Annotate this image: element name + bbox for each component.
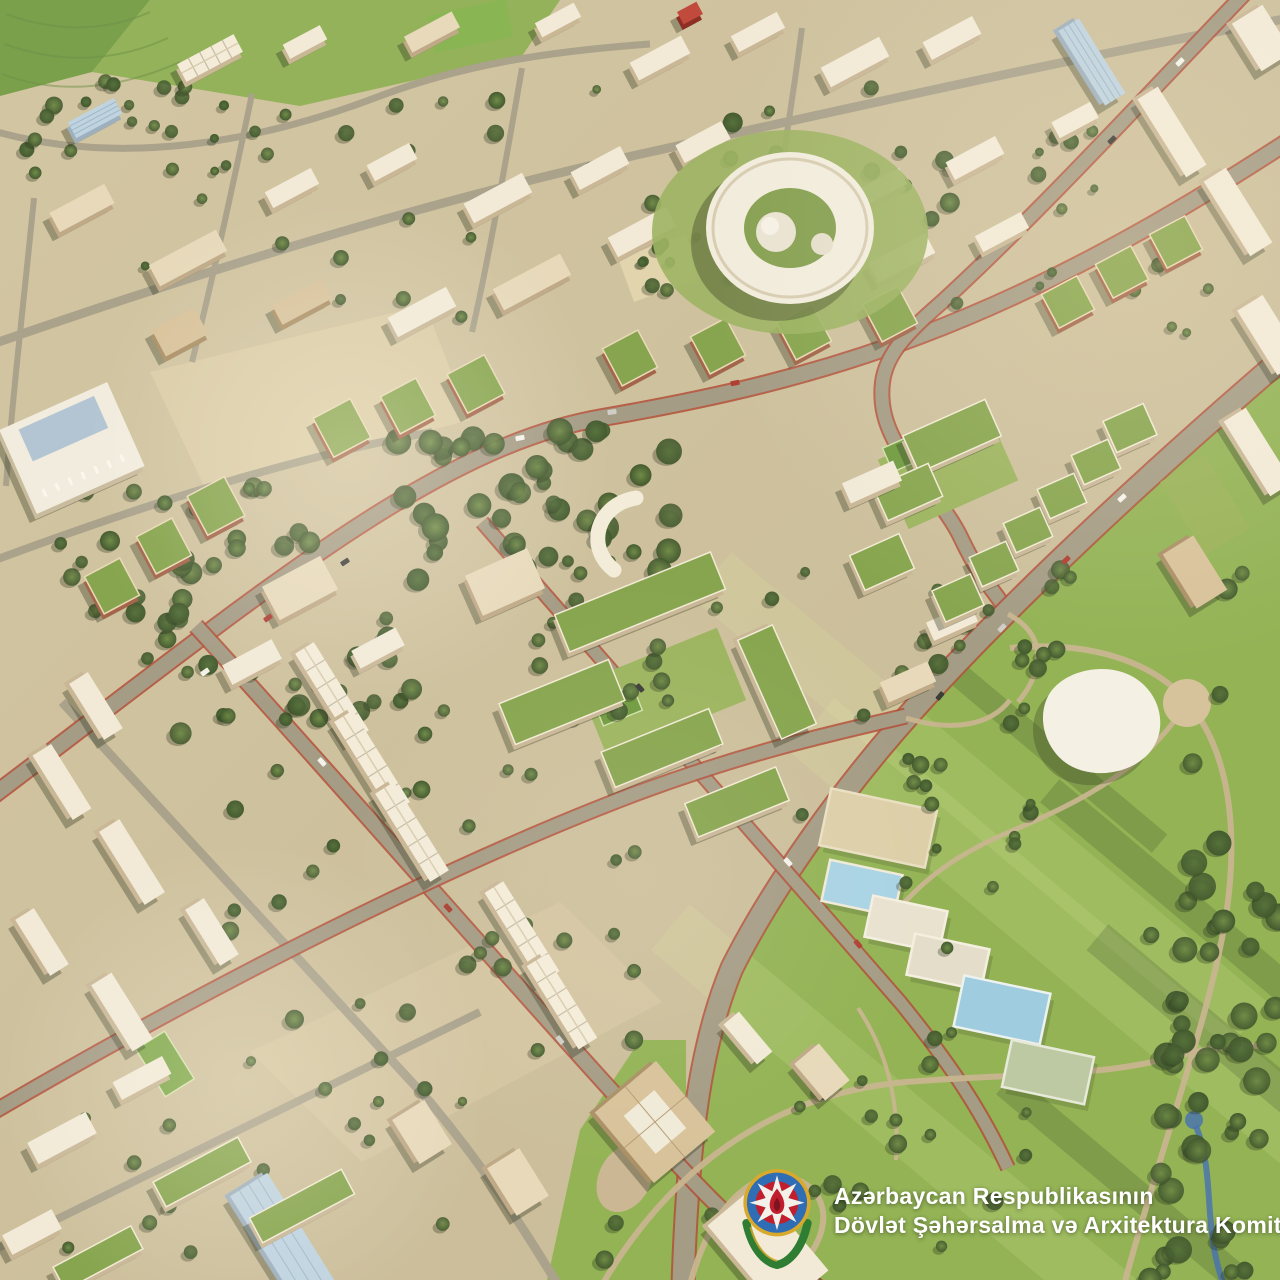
- watermark-line1: Azərbaycan Respublikasının: [834, 1182, 1280, 1211]
- azerbaijan-state-emblem-icon: [736, 1164, 818, 1270]
- aerial-masterplan-screenshot: Azərbaycan Respublikasının Dövlət Şəhərs…: [0, 0, 1280, 1280]
- park-pavilion: [1043, 669, 1160, 773]
- aerial-masterplan-render: [0, 0, 1280, 1280]
- watermark-line2: Dövlət Şəhərsalma və Arxitektura Komitəs…: [834, 1211, 1280, 1240]
- watermark-text: Azərbaycan Respublikasının Dövlət Şəhərs…: [834, 1182, 1280, 1240]
- watermark: Azərbaycan Respublikasının Dövlət Şəhərs…: [736, 1164, 1280, 1270]
